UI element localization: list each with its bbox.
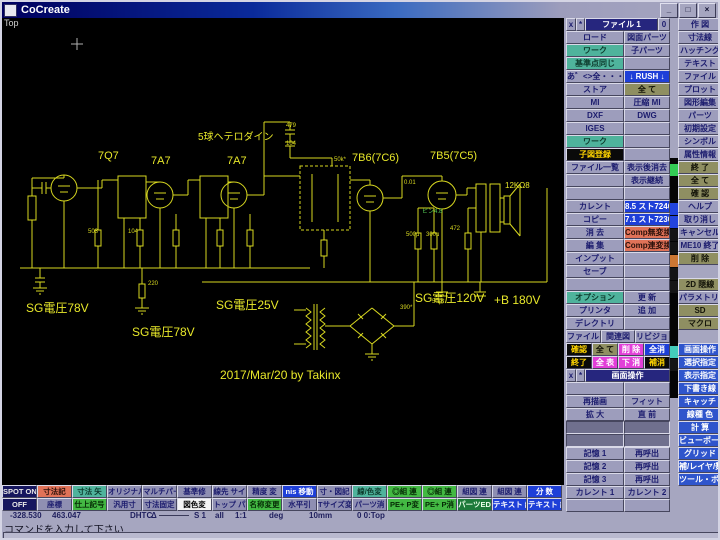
menu-button[interactable]: キャンセル — [678, 226, 720, 239]
panel-button[interactable]: 8.5 スト7240 — [624, 200, 670, 213]
schematic-label: +B 180V — [494, 293, 540, 307]
panel-button[interactable]: カレント — [566, 200, 624, 213]
panel-empty-cell — [624, 57, 670, 70]
menu-button[interactable]: 選択指定 — [678, 356, 720, 369]
menu-button[interactable]: 画面操作 — [678, 343, 720, 356]
panel-button[interactable]: あ゛<>全・・・・ — [566, 70, 624, 83]
menu-button[interactable]: 初期設定 — [678, 122, 720, 135]
component-value-text: 220 — [148, 281, 159, 287]
toolbar-button[interactable]: 線/色変 — [352, 485, 387, 498]
menu-button[interactable]: プロット — [678, 83, 720, 96]
toolbar-button[interactable]: テキスト 記 — [527, 498, 562, 511]
menu-button[interactable]: 図形編集 — [678, 96, 720, 109]
schematic-label: 12KΩ8 — [505, 181, 530, 190]
toolbar-button[interactable]: 基準修 — [177, 485, 212, 498]
toolbar-row-1: SPOT ON寸法記寸法 矢オリジナルマルチパーツ基準修線先 サイ精度 変nis… — [2, 485, 564, 498]
panel-button[interactable]: 関連図 — [601, 330, 635, 343]
menu-gap — [678, 330, 720, 343]
strip-marker — [670, 216, 678, 228]
toolbar-button[interactable]: 寸・図記 — [317, 485, 352, 498]
toolbar-button[interactable]: PE+ P変 — [387, 498, 422, 511]
menu-button[interactable]: グリッド — [678, 447, 720, 460]
status-segment: 1:1 — [235, 511, 247, 520]
toolbar-button[interactable]: 寸法記 — [37, 485, 72, 498]
toolbar-button[interactable]: パーツ消 — [352, 498, 387, 511]
menu-button[interactable]: SD — [678, 304, 720, 317]
menu-button[interactable]: 表示指定 — [678, 369, 720, 382]
window-controls: _□× — [660, 3, 716, 18]
menu-button[interactable]: ハッチング — [678, 44, 720, 57]
toolbar-button[interactable]: 組図 連 — [492, 485, 527, 498]
status-segment: Δ — [151, 511, 157, 520]
panel-empty-cell — [624, 278, 670, 291]
panel-button[interactable]: セーブ — [566, 265, 624, 278]
panel-button[interactable]: インプット — [566, 252, 624, 265]
panel-button[interactable]: オプション — [566, 291, 624, 304]
panel-button[interactable]: 追 加 — [624, 304, 670, 317]
title-bar: CoCreate _□× — [2, 2, 718, 18]
panel-button[interactable]: 表示後消去 — [624, 161, 670, 174]
status-segment: S 1 — [194, 511, 206, 520]
toolbar-button[interactable]: 汎用寸 — [107, 498, 142, 511]
panel-section-header: ファイル 1 — [585, 18, 658, 31]
panel-empty-cell — [566, 187, 624, 200]
toolbar-button[interactable]: テキスト 編 — [492, 498, 527, 511]
menu-button[interactable]: キャッチ — [678, 395, 720, 408]
status-bar: -328.530463.047DHTCΔS 1all1:1deg10mm0 0:… — [2, 511, 564, 521]
panel-button[interactable]: 記憶 3 — [566, 473, 624, 486]
toolbar-button[interactable]: nis 移動 — [282, 485, 317, 498]
schematic-label: SG電圧78V — [26, 301, 89, 315]
panel-button[interactable]: 全 て — [592, 343, 618, 356]
component-value-text: 479 — [286, 123, 297, 129]
panel-button[interactable]: デレクトリ — [566, 317, 624, 330]
app-icon — [4, 4, 17, 17]
component-value-text: ピン4.8 — [422, 208, 443, 215]
panel-button[interactable]: 全 て — [624, 83, 670, 96]
menu-button[interactable]: 確 認 — [678, 187, 720, 200]
menu-button[interactable]: 2D 隠線 — [678, 278, 720, 291]
component-value-text: 0.01 — [404, 180, 416, 186]
panel-button[interactable]: ワーク — [566, 135, 624, 148]
panel-button[interactable]: ロード — [566, 31, 624, 44]
panel-button[interactable]: 記憶 1 — [566, 447, 624, 460]
panel-button[interactable]: 7.1 スト7230 — [624, 213, 670, 226]
strip-marker — [670, 268, 678, 280]
panel-button[interactable]: 補消 — [644, 356, 670, 369]
toolbar-button[interactable]: 仕上記号 — [72, 498, 107, 511]
minimize-button[interactable]: _ — [660, 3, 678, 18]
panel-button[interactable]: 図面パーツ — [624, 31, 670, 44]
component-value-text: 390* — [400, 305, 413, 311]
panel-button[interactable]: * — [576, 18, 585, 31]
menu-button[interactable]: ヘルプ — [678, 200, 720, 213]
menu-button[interactable]: 計 算 — [678, 421, 720, 434]
panel-empty-cell — [624, 122, 670, 135]
menu-gap — [678, 265, 720, 278]
panel-button[interactable]: 直 前 — [624, 408, 670, 421]
status-segment: DHTC — [130, 511, 152, 520]
panel-button[interactable]: ↓ RUSH ↓ — [624, 70, 670, 83]
panel-empty-cell — [566, 278, 624, 291]
panel-button[interactable]: ワーク — [566, 44, 624, 57]
prompt-message: コマンドを入力して下さい — [2, 521, 566, 532]
menu-button[interactable]: シンボル — [678, 135, 720, 148]
panel-empty-cell — [624, 148, 670, 161]
panel-empty-cell — [624, 265, 670, 278]
panel-marker-strip — [670, 18, 678, 540]
main-menu-column: 作 図寸法線ハッチングテキストファイルプロット図形編集パーツ初期設定シンボル属性… — [678, 18, 720, 486]
toolbar-button[interactable]: OFF — [2, 498, 37, 511]
component-value-text: 500μ — [406, 232, 420, 238]
panel-section-header: 画面操作 — [585, 369, 670, 382]
schematic-label: SG電圧25V — [216, 298, 279, 312]
panel-button[interactable]: 記憶 2 — [566, 460, 624, 473]
panel-empty-cell — [624, 499, 670, 512]
component-value-text: 300μ — [426, 232, 440, 238]
menu-button[interactable]: 補/レイヤ/数 — [678, 460, 720, 473]
component-value-text: 50k* — [334, 157, 347, 163]
close-button[interactable]: × — [698, 3, 716, 18]
file-panel: x*ファイル 10ロード図面パーツワーク子パーツ基準点同じあ゛<>全・・・・↓ … — [566, 18, 670, 512]
panel-button[interactable]: Comp無変換 — [624, 226, 670, 239]
menu-button[interactable]: ツール・ボックス — [678, 473, 720, 486]
panel-button[interactable]: MI — [566, 96, 624, 109]
status-segment: 10mm — [309, 511, 332, 520]
schematic-label: 5球ヘテロダイン — [198, 130, 274, 143]
menu-button[interactable]: 属性情報 — [678, 148, 720, 161]
panel-button[interactable]: 全 表 — [592, 356, 618, 369]
panel-empty-cell — [566, 499, 624, 512]
panel-button[interactable]: カレント 2 — [624, 486, 670, 499]
panel-button[interactable]: リビジョン — [635, 330, 670, 343]
panel-button[interactable]: コピー — [566, 213, 624, 226]
strip-marker — [670, 242, 678, 254]
panel-button[interactable]: 子図登録 — [566, 148, 624, 161]
menu-button[interactable]: ME10 終了 — [678, 239, 720, 252]
panel-button[interactable]: 全消 — [644, 343, 670, 356]
toolbar-button[interactable]: 名称変更 — [247, 498, 282, 511]
strip-marker — [670, 203, 678, 215]
panel-empty-cell — [566, 434, 624, 447]
panel-button[interactable]: DWG — [624, 109, 670, 122]
panel-button[interactable]: 確認 — [566, 343, 592, 356]
panel-button[interactable]: 子パーツ — [624, 44, 670, 57]
menu-button[interactable]: マクロ — [678, 317, 720, 330]
toolbar-button[interactable]: 座標 — [37, 498, 72, 511]
panel-empty-cell — [624, 434, 670, 447]
status-segment: deg — [269, 511, 283, 520]
panel-button[interactable]: ファイル 2 — [566, 330, 601, 343]
panel-empty-cell — [624, 317, 670, 330]
schematic-label: 7B6(7C6) — [352, 152, 399, 164]
panel-button[interactable]: 下 消 — [618, 356, 644, 369]
toolbar-button[interactable]: 図色変 — [177, 498, 212, 511]
panel-button[interactable]: フィット — [624, 395, 670, 408]
menu-button[interactable]: 作 図 — [678, 18, 720, 31]
side-panel: x*ファイル 10ロード図面パーツワーク子パーツ基準点同じあ゛<>全・・・・↓ … — [564, 18, 720, 540]
schematic-label: 7A7 — [151, 155, 171, 167]
status-segment: -328.530 — [10, 511, 42, 520]
toolbar-button[interactable]: 組図 連 — [457, 485, 492, 498]
toolbar-button[interactable]: ◎組 連 — [387, 485, 422, 498]
toolbar-button[interactable]: 線先 サイ — [212, 485, 247, 498]
menu-button[interactable]: 全 て — [678, 174, 720, 187]
view-label: Top — [4, 18, 19, 28]
toolbar-button[interactable]: マルチパーツ — [142, 485, 177, 498]
panel-button[interactable]: プリンタ — [566, 304, 624, 317]
panel-button[interactable]: x — [566, 369, 576, 382]
window-title: CoCreate — [21, 4, 70, 16]
toolbar-button[interactable]: Tサイズ変 — [317, 498, 352, 511]
menu-button[interactable]: パラメトリック — [678, 291, 720, 304]
panel-button[interactable]: DXF — [566, 109, 624, 122]
menu-button[interactable]: 取り消し — [678, 213, 720, 226]
component-value-text: 503 — [88, 229, 99, 235]
panel-button[interactable]: 圧縮 MI — [624, 96, 670, 109]
status-segment: 0 0:Top — [357, 511, 385, 520]
panel-button[interactable]: 編 集 — [566, 239, 624, 252]
drawing-canvas[interactable]: Top 47910450k*503104500μ300μ4720.0150μ*3… — [2, 18, 564, 485]
toolbar-button[interactable]: 分 数 — [527, 485, 562, 498]
schematic-label: SG電圧78V — [132, 325, 195, 339]
panel-button[interactable]: 再描画 — [566, 395, 624, 408]
strip-marker — [670, 359, 678, 371]
panel-empty-cell — [624, 252, 670, 265]
panel-empty-cell — [624, 187, 670, 200]
panel-button[interactable]: 消 去 — [566, 226, 624, 239]
panel-button[interactable]: 更 新 — [624, 291, 670, 304]
panel-button[interactable]: IGES — [566, 122, 624, 135]
status-segment: 463.047 — [52, 511, 81, 520]
schematic-label: SG電圧120V — [415, 291, 484, 305]
component-value-text: 104 — [128, 229, 139, 235]
toolbar-button[interactable]: SPOT ON — [2, 485, 37, 498]
panel-button[interactable]: 終了 — [566, 356, 592, 369]
toolbar-row-2: OFF座標仕上記号汎用寸寸法固定図色変トップ パ名称変更水平引Tサイズ変パーツ消… — [2, 498, 564, 511]
menu-button[interactable]: 終 了 — [678, 161, 720, 174]
menu-button[interactable]: ビューポート — [678, 434, 720, 447]
toolbar-button[interactable]: トップ パ — [212, 498, 247, 511]
strip-marker — [670, 229, 678, 241]
menu-button[interactable]: テキスト — [678, 57, 720, 70]
toolbar-button[interactable]: オリジナル — [107, 485, 142, 498]
toolbar-button[interactable]: パーツED — [457, 498, 492, 511]
component-value-text: 104 — [286, 141, 297, 147]
menu-button[interactable]: 削 除 — [678, 252, 720, 265]
toolbar-button[interactable]: ◎組 連 — [422, 485, 457, 498]
panel-button[interactable]: 再呼出 — [624, 460, 670, 473]
menu-button[interactable]: 寸法線 — [678, 31, 720, 44]
strip-marker — [670, 255, 678, 267]
menu-button[interactable]: 線種 色 — [678, 408, 720, 421]
bottom-toolbar: SPOT ON寸法記寸法 矢オリジナルマルチパーツ基準修線先 サイ精度 変nis… — [2, 485, 564, 511]
panel-empty-cell — [566, 382, 624, 395]
schematic-drawing: 47910450k*503104500μ300μ4720.0150μ*390*2… — [2, 18, 564, 485]
panel-empty-cell — [624, 135, 670, 148]
panel-empty-cell — [566, 174, 624, 187]
panel-button[interactable]: カレント 1 — [566, 486, 624, 499]
status-segment: all — [215, 511, 224, 520]
panel-button[interactable]: ストア — [566, 83, 624, 96]
panel-button[interactable]: 削 除 — [618, 343, 644, 356]
app-window: CoCreate _□× Top 47910450k*503104500μ300… — [0, 0, 720, 540]
menu-button[interactable]: 下書き線 — [678, 382, 720, 395]
schematic-label: 7A7 — [227, 155, 247, 167]
panel-button[interactable]: 表示継続 — [624, 174, 670, 187]
panel-button[interactable]: x — [566, 18, 576, 31]
panel-button[interactable]: 再呼出 — [624, 447, 670, 460]
panel-empty-cell — [624, 382, 670, 395]
command-input-area[interactable] — [3, 532, 719, 540]
toolbar-button[interactable]: 精度 変 — [247, 485, 282, 498]
panel-button[interactable]: 基準点同じ — [566, 57, 624, 70]
menu-button[interactable]: パーツ — [678, 109, 720, 122]
panel-button[interactable]: ファイル一覧 — [566, 161, 624, 174]
strip-marker — [670, 164, 678, 176]
schematic-label: 7Q7 — [98, 150, 119, 162]
panel-button[interactable]: Comp連変換 — [624, 239, 670, 252]
toolbar-button[interactable]: PE+ P消 — [422, 498, 457, 511]
panel-button[interactable]: 0 — [658, 18, 670, 31]
toolbar-button[interactable]: 寸法 矢 — [72, 485, 107, 498]
schematic-label: 2017/Mar/20 by Takinx — [220, 368, 341, 382]
panel-button[interactable]: 拡 大 — [566, 408, 624, 421]
toolbar-button[interactable]: 水平引 — [282, 498, 317, 511]
panel-empty-cell — [566, 421, 624, 434]
strip-marker — [670, 281, 678, 293]
component-value-text: 472 — [450, 226, 461, 232]
maximize-button[interactable]: □ — [679, 3, 697, 18]
toolbar-button[interactable]: 寸法固定 — [142, 498, 177, 511]
panel-empty-cell — [624, 421, 670, 434]
panel-button[interactable]: * — [576, 369, 585, 382]
strip-marker — [670, 346, 678, 358]
panel-button[interactable]: 再呼出 — [624, 473, 670, 486]
schematic-label: 7B5(7C5) — [430, 150, 477, 162]
menu-button[interactable]: ファイル — [678, 70, 720, 83]
